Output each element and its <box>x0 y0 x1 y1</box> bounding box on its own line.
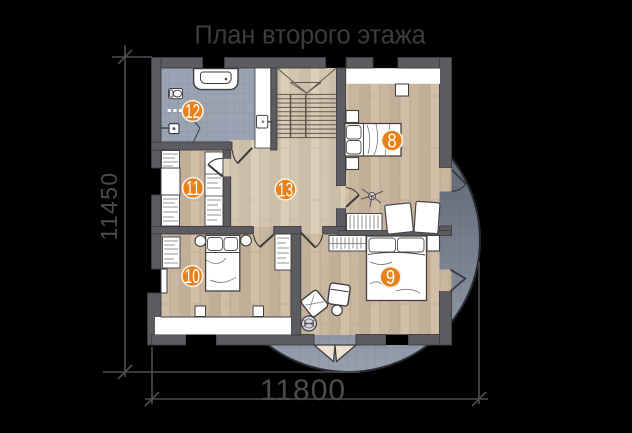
svg-text:12: 12 <box>185 101 200 123</box>
svg-text:11800: 11800 <box>260 374 346 407</box>
svg-text:9: 9 <box>386 267 395 289</box>
svg-text:13: 13 <box>278 180 294 202</box>
svg-text:11: 11 <box>186 178 200 200</box>
svg-text:11450: 11450 <box>96 171 122 240</box>
svg-text:10: 10 <box>185 266 201 288</box>
svg-text:План второго этажа: План второго этажа <box>194 22 426 50</box>
svg-text:8: 8 <box>387 131 396 153</box>
